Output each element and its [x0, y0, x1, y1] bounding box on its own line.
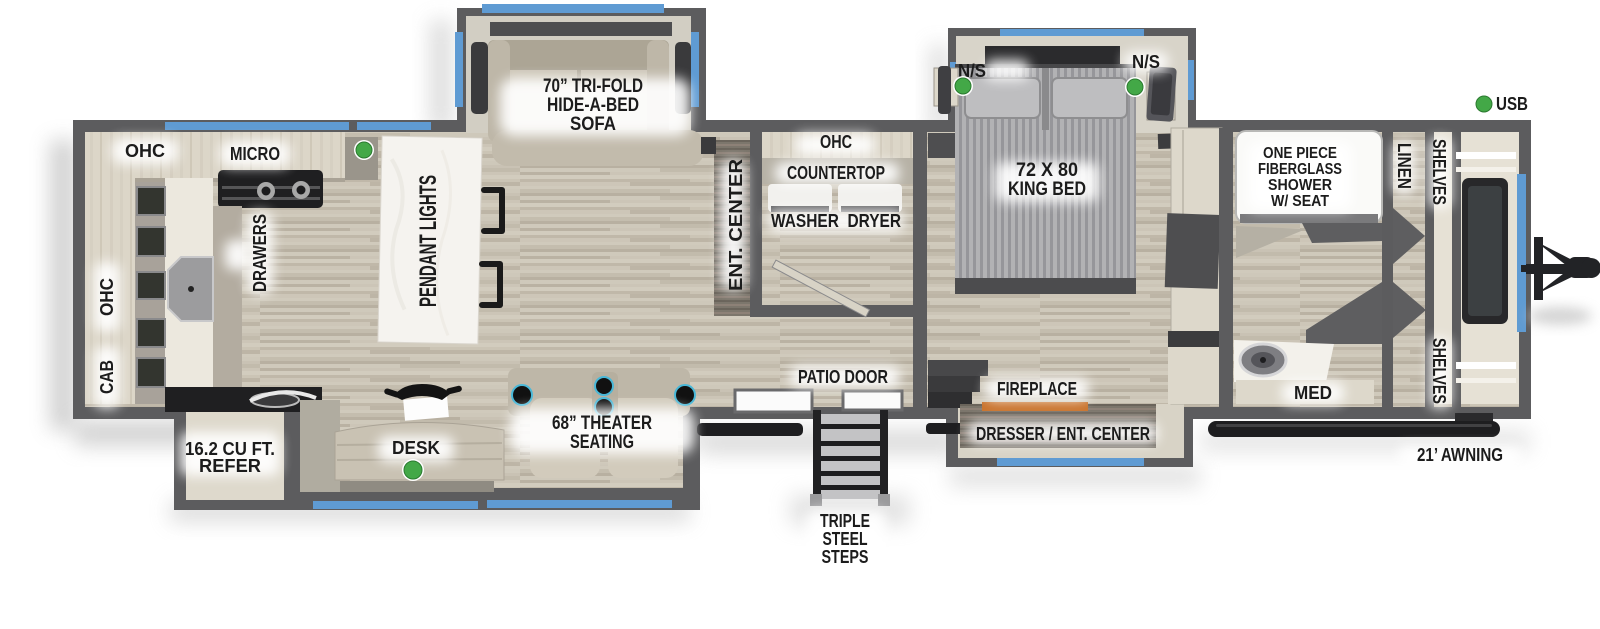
svg-text:OHC: OHC: [125, 141, 165, 161]
svg-text:SOFA: SOFA: [570, 114, 616, 135]
svg-text:STEEL: STEEL: [823, 529, 868, 549]
svg-text:DESK: DESK: [392, 438, 440, 458]
svg-text:HIDE-A-BED: HIDE-A-BED: [547, 95, 639, 116]
svg-text:N/S: N/S: [1132, 52, 1160, 72]
svg-text:72 X 80: 72 X 80: [1016, 160, 1078, 181]
svg-text:21’ AWNING: 21’ AWNING: [1417, 445, 1503, 465]
svg-text:DRESSER / ENT. CENTER: DRESSER / ENT. CENTER: [976, 424, 1150, 444]
svg-text:ONE PIECE: ONE PIECE: [1263, 145, 1337, 162]
svg-text:ENT. CENTER: ENT. CENTER: [726, 159, 746, 291]
svg-text:PATIO DOOR: PATIO DOOR: [798, 367, 888, 387]
svg-text:LINEN: LINEN: [1394, 143, 1414, 189]
svg-text:TRIPLE: TRIPLE: [820, 511, 870, 531]
svg-text:STEPS: STEPS: [822, 547, 869, 567]
svg-text:W/ SEAT: W/ SEAT: [1271, 193, 1329, 210]
svg-text:CAB: CAB: [97, 360, 117, 394]
svg-text:DRAWERS: DRAWERS: [250, 214, 270, 292]
svg-text:WASHER DRYER: WASHER DRYER: [771, 211, 901, 231]
svg-text:USB: USB: [1496, 94, 1528, 114]
svg-text:SHELVES: SHELVES: [1429, 338, 1449, 404]
svg-text:COUNTERTOP: COUNTERTOP: [787, 163, 885, 183]
svg-text:SEATING: SEATING: [570, 432, 634, 453]
svg-text:KING BED: KING BED: [1008, 179, 1086, 200]
svg-text:FIREPLACE: FIREPLACE: [997, 379, 1077, 399]
svg-text:OHC: OHC: [97, 278, 117, 316]
svg-text:SHOWER: SHOWER: [1268, 177, 1332, 194]
svg-text:PENDANT LIGHTS: PENDANT LIGHTS: [415, 175, 442, 307]
svg-text:MED: MED: [1294, 383, 1332, 403]
svg-text:REFER: REFER: [199, 456, 261, 476]
svg-text:70” TRI-FOLD: 70” TRI-FOLD: [543, 76, 643, 97]
svg-text:MICRO: MICRO: [230, 144, 280, 164]
svg-text:OHC: OHC: [820, 132, 852, 152]
svg-text:68” THEATER: 68” THEATER: [552, 413, 652, 434]
svg-text:FIBERGLASS: FIBERGLASS: [1258, 161, 1342, 178]
svg-text:SHELVES: SHELVES: [1429, 139, 1449, 205]
